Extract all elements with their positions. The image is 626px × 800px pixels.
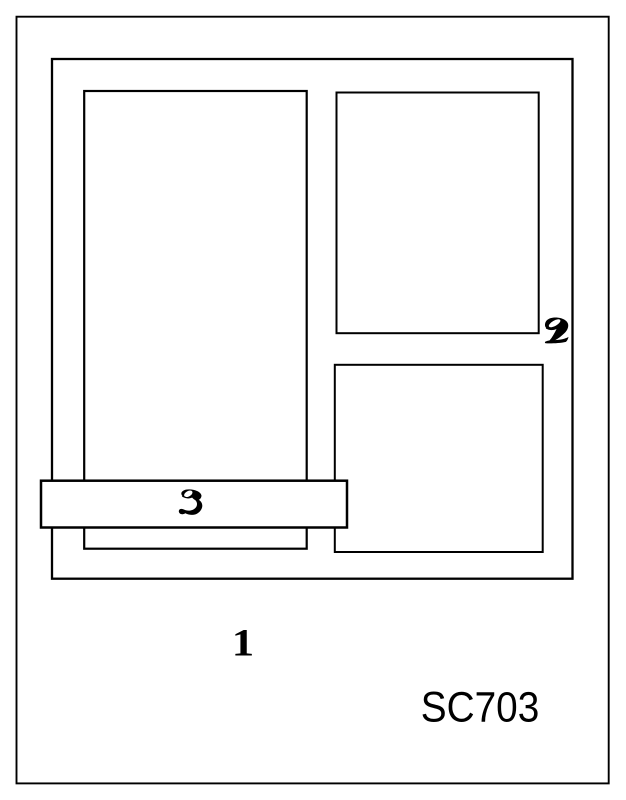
svg-text:1: 1: [232, 622, 254, 665]
svg-text:SC703: SC703: [421, 683, 539, 731]
